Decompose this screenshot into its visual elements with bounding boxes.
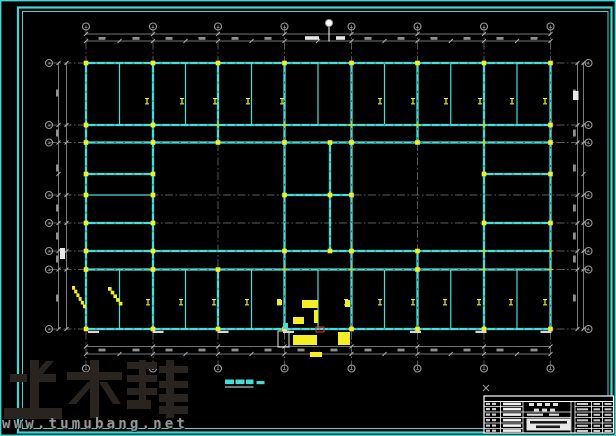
watermark-url-text: www.tumubang.net	[2, 416, 188, 432]
cad-screenshot: www.tumubang.net	[0, 0, 616, 436]
beam-text-marks	[60, 36, 579, 333]
plan-title	[225, 380, 265, 388]
cursor-mark	[483, 385, 489, 391]
title-block	[484, 396, 614, 433]
bay-labels	[145, 98, 547, 305]
structural-plan-drawing	[0, 0, 616, 436]
watermark-brand-glyphs	[4, 360, 188, 419]
structural-beams	[86, 63, 551, 329]
